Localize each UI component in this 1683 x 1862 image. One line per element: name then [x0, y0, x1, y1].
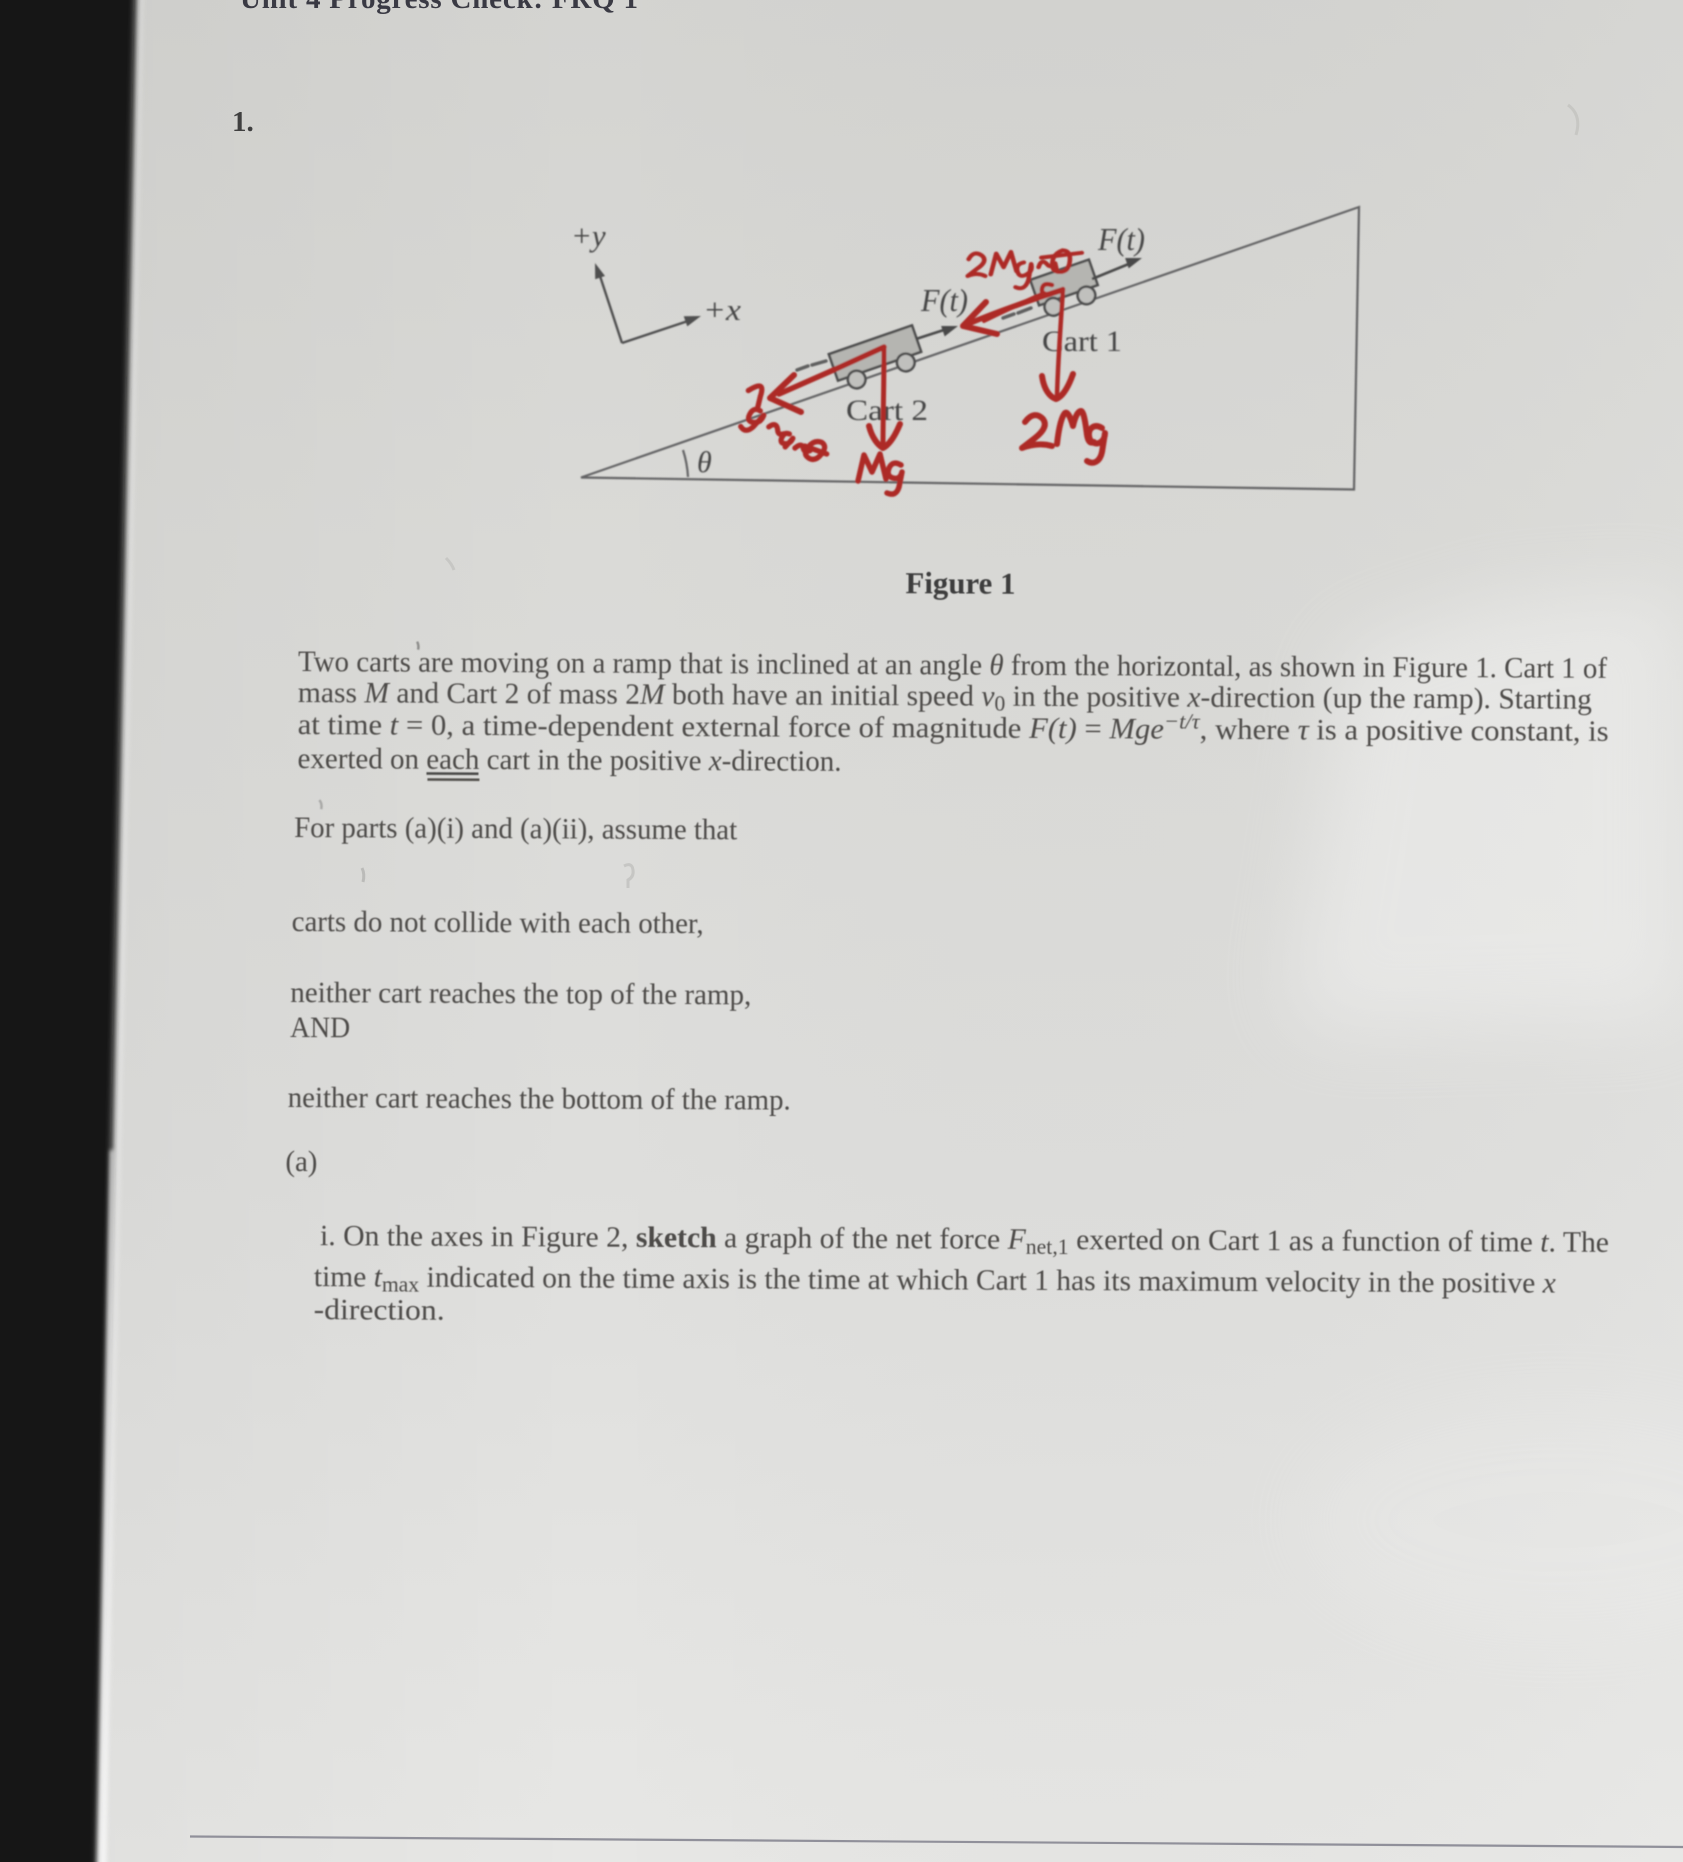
svg-text:(a): (a) — [285, 1145, 317, 1178]
svg-text:Unit 4 Progress Check: FRQ 1: Unit 4 Progress Check: FRQ 1 — [240, 0, 638, 15]
svg-text:neither cart reaches the top o: neither cart reaches the top of the ramp… — [290, 976, 751, 1011]
svg-text:carts do not collide with each: carts do not collide with each other, — [292, 905, 704, 940]
svg-text:1.: 1. — [232, 106, 254, 138]
svg-text:exerted on each cart in the po: exerted on each cart in the positive x-d… — [297, 742, 841, 778]
svg-text:F(t): F(t) — [920, 282, 968, 318]
svg-text:neither cart reaches the botto: neither cart reaches the bottom of the r… — [288, 1081, 791, 1117]
svg-text:+y: +y — [571, 218, 606, 253]
svg-text:Cart 1: Cart 1 — [1042, 325, 1122, 358]
svg-text:For parts (a)(i) and (a)(ii),: For parts (a)(i) and (a)(ii), assume tha… — [294, 811, 738, 846]
svg-text:-direction.: -direction. — [314, 1293, 445, 1327]
svg-text:θ: θ — [697, 446, 712, 479]
svg-text:F(t): F(t) — [1097, 221, 1145, 257]
svg-text:+x: +x — [703, 292, 741, 327]
svg-text:AND: AND — [290, 1011, 350, 1044]
svg-text:Figure 1: Figure 1 — [905, 565, 1015, 601]
svg-text:Cart 2: Cart 2 — [846, 394, 928, 427]
